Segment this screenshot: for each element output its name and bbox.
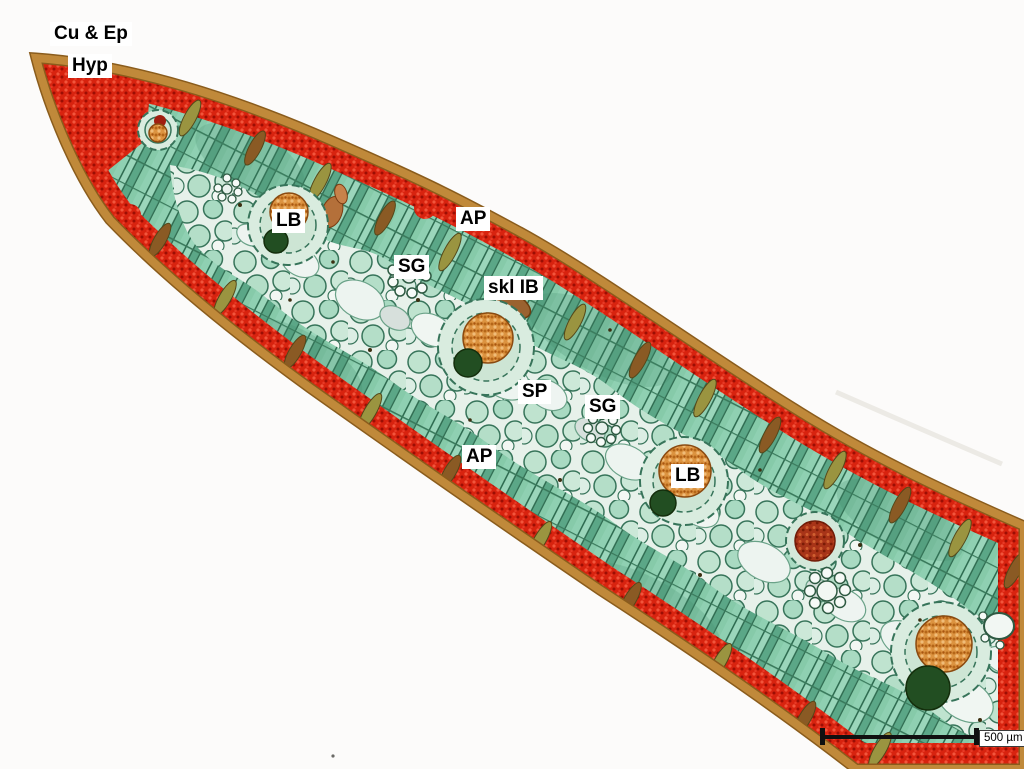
scale-bar-line	[822, 735, 978, 739]
label-cuticle-epidermis: Cu & Ep	[50, 22, 132, 46]
secretory-gland-3	[805, 568, 851, 614]
leaf-cross-section-image	[0, 0, 1024, 769]
scale-bar-value: 500 µm	[979, 730, 1024, 747]
vascular-bundle-5	[786, 512, 844, 570]
vascular-bundle-1	[138, 110, 178, 150]
label-hypodermis: Hyp	[68, 54, 112, 78]
debris-speck	[331, 754, 334, 757]
label-sclerenchyma-bundle: skl IB	[484, 276, 543, 300]
micrograph-figure: Cu & Ep Hyp LB AP SG skl IB SP SG AP LB …	[0, 0, 1024, 769]
label-secretory-gland-2: SG	[585, 395, 620, 419]
label-leaf-bundle-1: LB	[272, 209, 305, 233]
scale-bar-left-cap	[820, 728, 825, 745]
label-spongy-parenchyma: SP	[518, 380, 551, 404]
label-secretory-gland-1: SG	[394, 255, 429, 279]
label-leaf-bundle-2: LB	[671, 464, 704, 488]
label-assimilation-parenchyma-1: AP	[456, 207, 490, 231]
label-assimilation-parenchyma-2: AP	[462, 445, 496, 469]
